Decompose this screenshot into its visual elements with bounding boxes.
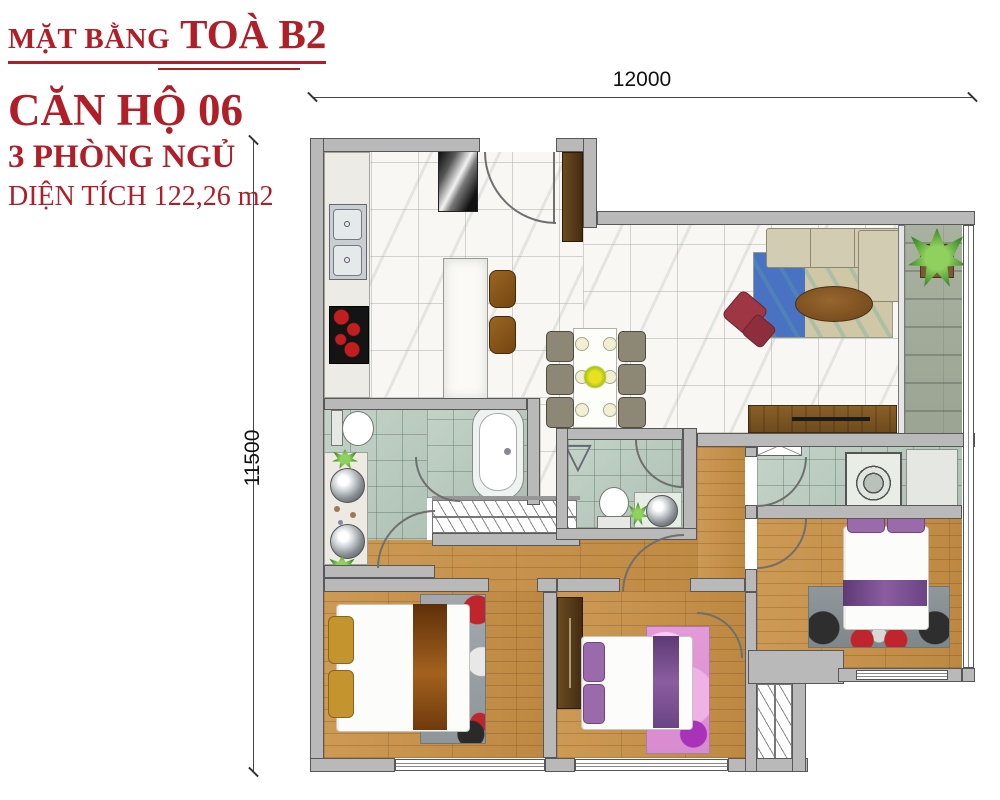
wall [556,428,568,540]
place-setting [575,337,589,351]
page-title: MẶT BẰNG TOÀ B2 [8,10,326,64]
wall [745,569,757,592]
dining-chair [546,331,574,362]
window [575,759,728,771]
floorplan-page: MẶT BẰNG TOÀ B2 CĂN HỘ 06 3 PHÒNG NGỦ DI… [0,0,1000,800]
dining-chair [618,331,646,362]
refrigerator [438,150,478,212]
area-text: DIỆN TÍCH 122,26 m2 [8,183,326,211]
pillow [583,642,605,682]
place-setting [603,403,617,417]
kitchen-island [443,258,488,400]
pillow [328,616,354,664]
wall [324,398,527,410]
coffee-table [795,286,873,322]
laundry-counter [906,449,958,509]
vanity-accessory [350,512,356,518]
building-name: TOÀ B2 [180,10,326,58]
bar-stool [489,270,516,308]
bed-runner [653,636,679,728]
wall [748,650,844,684]
tv [792,417,870,421]
wall [792,682,806,772]
balcony-sliding-door [898,225,905,437]
vanity-accessory [338,520,343,525]
bar-stool [489,316,516,354]
flower-centerpiece-icon [583,365,607,389]
toilet [599,487,629,519]
wall [697,433,975,447]
entry-door-leaf [553,152,555,224]
bedroom3-bed [843,526,929,630]
title-block: MẶT BẰNG TOÀ B2 CĂN HỘ 06 3 PHÒNG NGỦ DI… [8,10,326,211]
vanity-accessory [334,506,340,512]
window [963,225,974,668]
bedrooms-subtitle: 3 PHÒNG NGỦ [8,141,326,174]
bathroom2-door-leaf [681,440,683,488]
vanity-sink [330,524,365,559]
dining-chair [618,397,646,428]
wall [683,428,697,540]
dimension-height-label: 11500 [241,418,265,498]
wall [310,138,324,772]
building-label: MẶT BẰNG [8,23,170,56]
wall [690,578,745,592]
bathtub-drain [504,448,511,455]
bed-runner [413,604,447,730]
dining-chair [546,364,574,395]
dining-chair [618,364,646,395]
place-setting [603,337,617,351]
pillow [583,684,605,724]
wall [556,428,683,440]
cooktop [329,306,369,364]
dimension-width-line [312,97,972,98]
wall [745,505,757,519]
wall [310,758,395,772]
sofa-chaise [858,230,900,302]
window [856,670,948,680]
wall [757,505,962,519]
vanity-sink [330,468,365,503]
wardrobe-handle [569,618,571,688]
wall [543,592,557,758]
wall [545,758,575,772]
wall [324,578,489,592]
dimension-width-label: 12000 [312,68,972,92]
sink-drain [344,221,350,227]
bed-runner [843,580,927,606]
vanity-sink [646,495,678,527]
wall [537,578,557,592]
title-underline-accent [158,68,300,70]
bedroom3-closet-rod [774,684,776,768]
bathtub-basin [479,413,517,491]
entry-shoe-cabinet [562,152,583,242]
bedroom1-bed [336,604,470,732]
wall [527,398,540,505]
wall [583,138,597,228]
wall [310,138,480,152]
wall [745,447,757,457]
wall [557,578,620,592]
wall [597,211,975,225]
sink-drain [344,257,350,263]
pillow [328,670,354,718]
washing-machine [845,452,902,510]
dining-chair [546,397,574,428]
toilet [342,411,374,446]
window [395,759,545,771]
place-setting [575,403,589,417]
corridor2-floor [697,447,745,592]
wall [962,668,975,682]
unit-title: CĂN HỘ 06 [8,88,326,133]
